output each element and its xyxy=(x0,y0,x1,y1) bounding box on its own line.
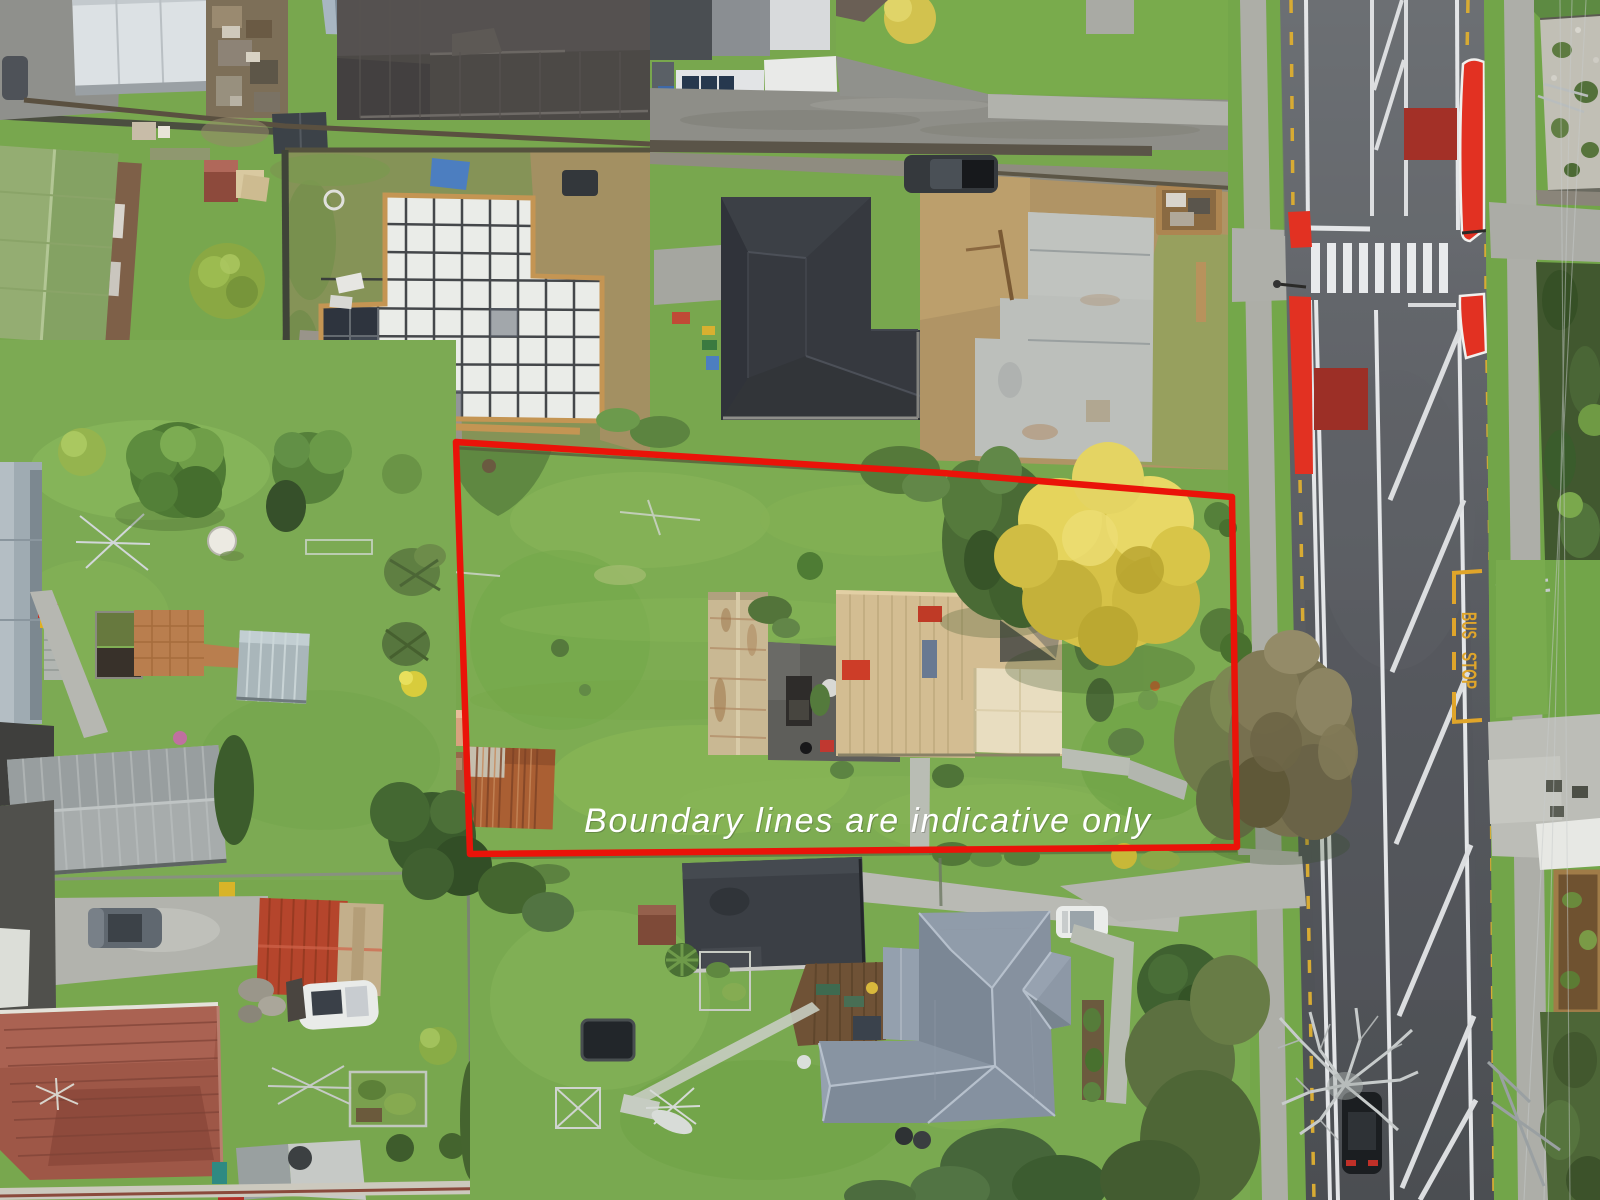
svg-text:STOP: STOP xyxy=(1457,652,1480,689)
svg-text:BUS: BUS xyxy=(1457,612,1480,639)
svg-text:Boundary lines are indicative: Boundary lines are indicative only xyxy=(584,802,1152,840)
